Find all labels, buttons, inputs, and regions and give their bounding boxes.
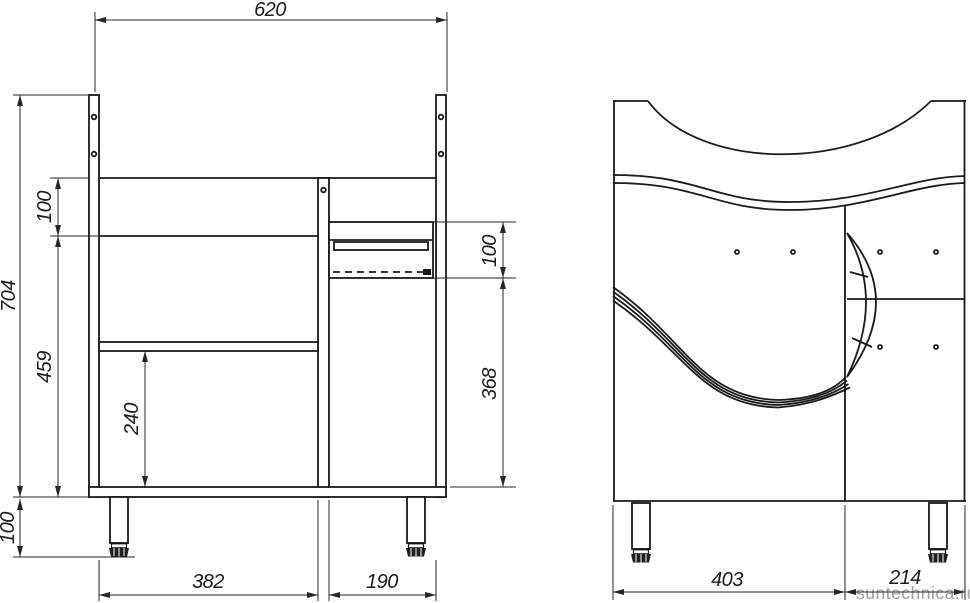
dim-under-basket-height: 368 [450,278,516,487]
leg [632,503,650,549]
side-panels [89,95,446,497]
technical-drawing-page: 620 704 100 459 100 240 [0,0,970,603]
leg [110,497,128,543]
cabinet-outline [613,100,966,501]
adjustable-foot [631,549,651,563]
center-divider-panel [318,178,329,497]
dim-overall-height-label: 704 [0,280,20,312]
countertop-wave-band [613,175,965,210]
dim-basket-height-label: 100 [479,235,501,267]
leg [929,503,947,549]
dim-overall-width-label: 620 [254,0,286,21]
leg [407,497,425,543]
dim-side-module-width-label: 214 [888,567,921,589]
dim-shelf-clearance-label: 240 [121,403,143,436]
basket-stop [423,269,431,275]
adjustable-foot [928,549,948,563]
dim-leg-height-label: 100 [0,512,19,544]
dim-overall-width: 620 [95,0,447,92]
legs-carcass-view [109,497,426,557]
towel-basket [329,222,433,278]
dim-right-bay-width: 190 [329,571,436,595]
dim-under-basket-height-label: 368 [479,368,501,400]
adjustable-foot [406,543,426,557]
door-wave-moulding [613,287,850,408]
front-view: suntechnica.ru [613,100,970,603]
dim-carcass-height-label: 459 [34,351,56,383]
adjustable-foot [109,543,129,557]
handle-arc [847,233,876,377]
dim-apron-height-label: 100 [34,191,56,223]
bottom-panel [89,487,446,497]
carcass-view: 620 704 100 459 100 240 [0,0,516,601]
dim-carcass-height: 459 [34,236,58,497]
dim-shelf-clearance: 240 [121,351,145,487]
dim-left-bay-width-label: 382 [192,571,224,593]
vanity-cabinet-drawing-canvas: 620 704 100 459 100 240 [0,0,970,603]
dim-right-bay-width-label: 190 [366,571,398,593]
dim-door-width-label: 403 [711,569,743,591]
sink-cutout-curve [648,101,931,154]
shelf [99,342,318,351]
legs-front-view [631,503,948,563]
